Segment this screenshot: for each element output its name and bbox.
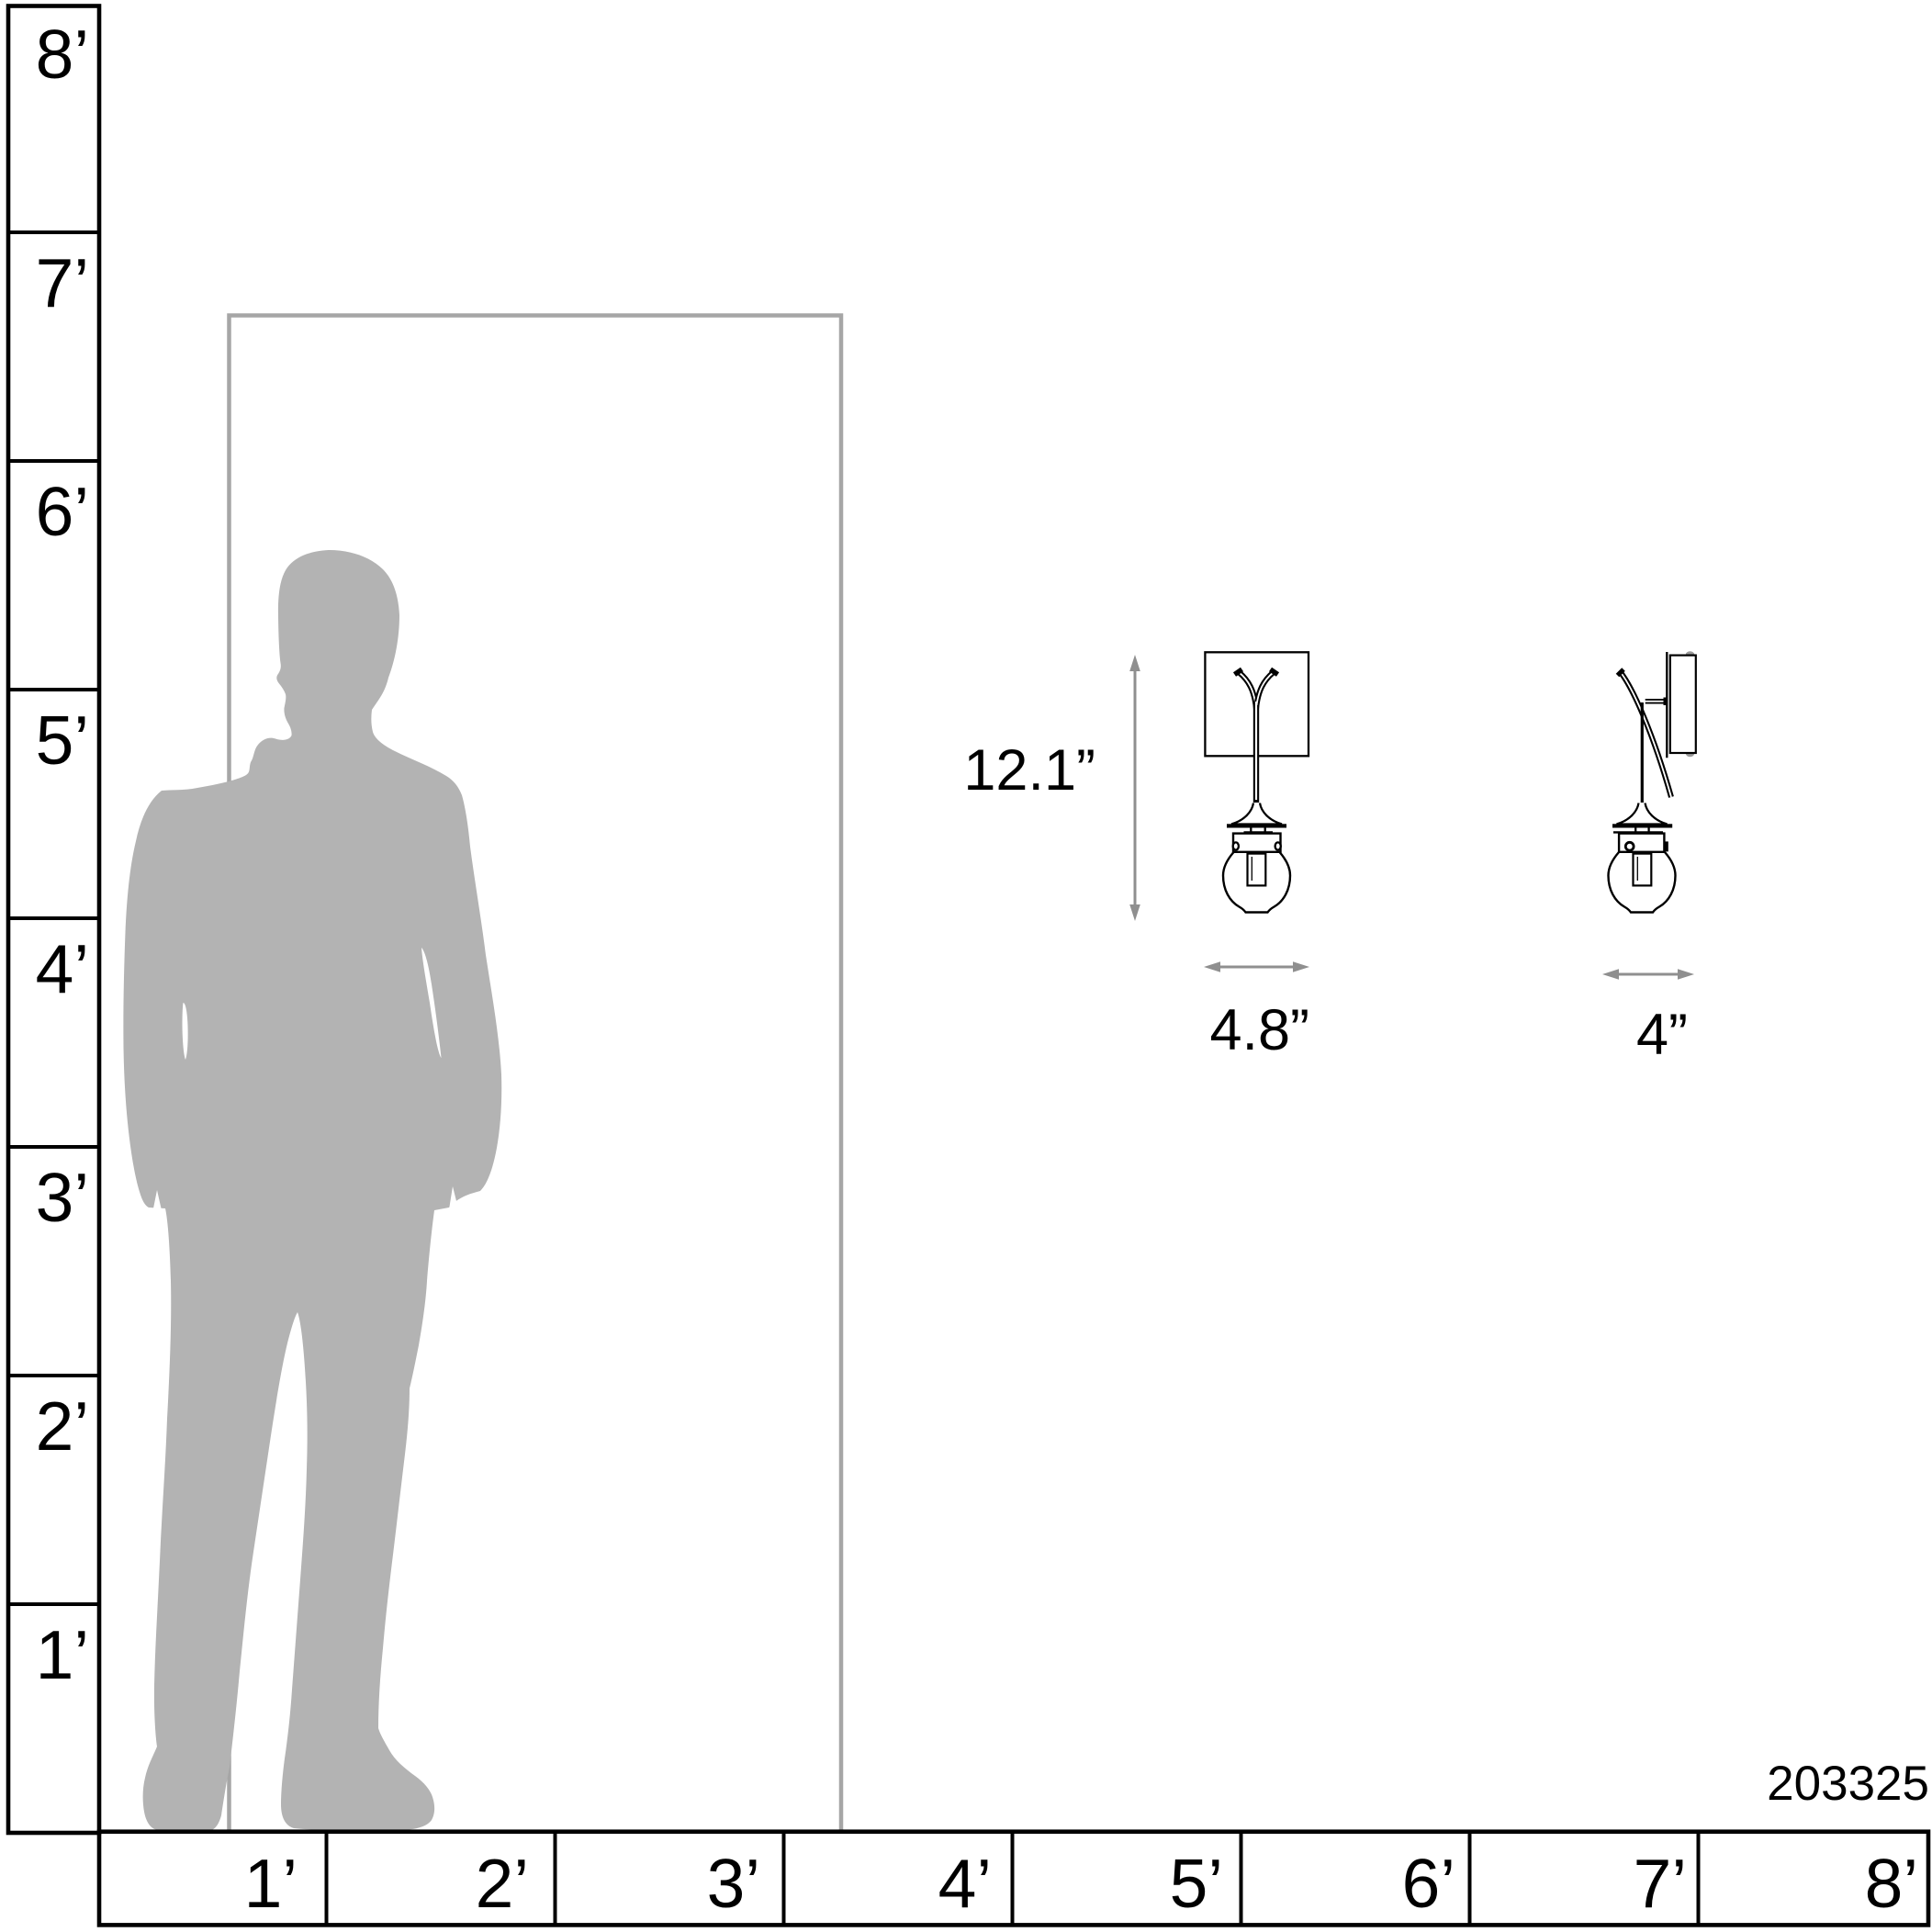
svg-text:1’: 1’	[244, 1845, 298, 1922]
svg-text:4.8”: 4.8”	[1209, 998, 1309, 1062]
svg-text:12.1”: 12.1”	[963, 738, 1095, 803]
svg-text:5’: 5’	[36, 702, 89, 779]
svg-text:203325: 203325	[1767, 1757, 1929, 1811]
svg-text:8’: 8’	[1865, 1845, 1918, 1922]
svg-text:8’: 8’	[36, 16, 89, 93]
svg-text:3’: 3’	[36, 1159, 89, 1236]
svg-text:5’: 5’	[1170, 1845, 1223, 1922]
svg-text:4’: 4’	[36, 930, 89, 1007]
svg-text:1’: 1’	[36, 1616, 89, 1693]
svg-text:6’: 6’	[36, 473, 89, 550]
svg-text:7’: 7’	[1634, 1845, 1687, 1922]
svg-text:7’: 7’	[36, 244, 89, 321]
svg-text:2’: 2’	[36, 1387, 89, 1465]
svg-text:4’: 4’	[938, 1845, 992, 1922]
svg-text:4”: 4”	[1636, 1003, 1688, 1067]
svg-text:6’: 6’	[1402, 1845, 1455, 1922]
svg-text:2’: 2’	[476, 1845, 529, 1922]
svg-text:3’: 3’	[707, 1845, 760, 1922]
